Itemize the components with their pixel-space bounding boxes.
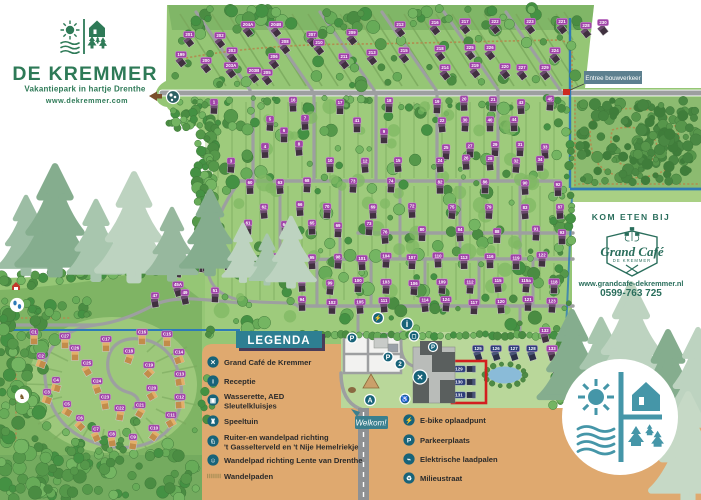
- svg-text:45: 45: [548, 96, 553, 101]
- svg-text:91: 91: [534, 226, 539, 231]
- svg-text:P: P: [431, 345, 435, 351]
- svg-text:214: 214: [441, 65, 449, 70]
- svg-text:25: 25: [444, 145, 449, 150]
- svg-text:⚡: ⚡: [405, 416, 413, 424]
- svg-text:C23: C23: [101, 395, 110, 400]
- svg-text:47: 47: [153, 293, 158, 298]
- svg-text:0599-763 725: 0599-763 725: [600, 288, 662, 299]
- svg-text:121: 121: [524, 297, 532, 302]
- svg-text:69: 69: [371, 205, 376, 210]
- svg-text:Receptie: Receptie: [224, 377, 256, 386]
- svg-text:217: 217: [461, 19, 469, 24]
- svg-text:A: A: [367, 398, 372, 405]
- svg-text:16: 16: [291, 98, 296, 103]
- svg-text:P: P: [350, 336, 355, 343]
- svg-text:C9: C9: [130, 435, 136, 440]
- svg-text:104: 104: [382, 254, 390, 259]
- svg-text:C13: C13: [176, 372, 185, 377]
- svg-text:73: 73: [351, 179, 356, 184]
- svg-text:☺: ☺: [210, 457, 217, 464]
- svg-text:74: 74: [389, 178, 394, 183]
- svg-text:63: 63: [278, 180, 283, 185]
- svg-text:95: 95: [310, 255, 315, 260]
- svg-text:203B: 203B: [249, 68, 260, 73]
- svg-text:C15: C15: [163, 332, 172, 337]
- svg-text:Speeltuin: Speeltuin: [224, 417, 259, 426]
- svg-text:82: 82: [438, 180, 443, 185]
- svg-text:C10: C10: [150, 426, 159, 431]
- svg-text:75: 75: [450, 205, 455, 210]
- svg-text:124: 124: [442, 297, 450, 302]
- svg-text:C24: C24: [93, 379, 102, 384]
- svg-text:34: 34: [538, 157, 543, 162]
- svg-text:28: 28: [488, 156, 493, 161]
- svg-text:65: 65: [310, 221, 315, 226]
- svg-text:61: 61: [246, 220, 251, 225]
- svg-text:www.dekremmer.com: www.dekremmer.com: [45, 96, 128, 105]
- svg-text:30: 30: [463, 117, 468, 122]
- svg-text:17: 17: [338, 100, 343, 105]
- svg-text:C22: C22: [116, 406, 125, 411]
- svg-text:Vakantiepark in hartje Drenthe: Vakantiepark in hartje Drenthe: [24, 85, 146, 94]
- svg-text:113: 113: [460, 255, 468, 260]
- svg-text:66: 66: [298, 202, 303, 207]
- svg-text:102: 102: [328, 300, 336, 305]
- svg-text:31: 31: [518, 142, 523, 147]
- svg-text:Milieustraat: Milieustraat: [420, 474, 463, 483]
- svg-text:80: 80: [420, 227, 425, 232]
- svg-text:www.grandcafe-dekremmer.nl: www.grandcafe-dekremmer.nl: [578, 279, 684, 288]
- svg-text:103: 103: [382, 280, 390, 285]
- svg-text:C3: C3: [44, 390, 50, 395]
- svg-text:131: 131: [455, 393, 463, 398]
- svg-text:112: 112: [466, 280, 474, 285]
- svg-text:205: 205: [263, 70, 271, 75]
- svg-text:116: 116: [486, 254, 494, 259]
- svg-text:C19: C19: [145, 363, 154, 368]
- svg-text:225: 225: [466, 45, 474, 50]
- svg-text:88: 88: [495, 229, 500, 234]
- svg-text:44: 44: [512, 117, 517, 122]
- svg-text:45A: 45A: [174, 282, 183, 287]
- svg-text:204B: 204B: [271, 22, 282, 27]
- svg-text:⌁: ⌁: [407, 456, 411, 463]
- svg-text:C7: C7: [93, 427, 99, 432]
- svg-text:◻: ◻: [412, 334, 417, 340]
- svg-text:i: i: [212, 378, 214, 385]
- svg-text:119: 119: [512, 255, 520, 260]
- svg-text:19: 19: [435, 99, 440, 104]
- svg-text:21: 21: [491, 97, 496, 102]
- svg-text:C17: C17: [102, 337, 111, 342]
- svg-text:24: 24: [438, 158, 443, 163]
- svg-text:209: 209: [348, 30, 356, 35]
- svg-text:LEGENDA: LEGENDA: [247, 335, 310, 347]
- svg-text:32: 32: [514, 159, 519, 164]
- svg-text:12: 12: [363, 159, 368, 164]
- svg-text:122: 122: [538, 253, 546, 258]
- svg-text:22: 22: [440, 118, 445, 123]
- svg-text:207: 207: [308, 32, 316, 37]
- svg-text:18: 18: [387, 98, 392, 103]
- svg-text:✕: ✕: [210, 359, 216, 366]
- svg-text:51: 51: [213, 288, 218, 293]
- svg-text:15: 15: [396, 158, 401, 163]
- svg-text:90: 90: [523, 181, 528, 186]
- svg-text:C6: C6: [77, 416, 83, 421]
- svg-text:98: 98: [336, 254, 341, 259]
- svg-text:125: 125: [474, 346, 482, 351]
- svg-text:10: 10: [328, 158, 333, 163]
- svg-text:213: 213: [368, 50, 376, 55]
- svg-text:222: 222: [491, 19, 499, 24]
- svg-text:220: 220: [501, 64, 509, 69]
- svg-text:109: 109: [438, 280, 446, 285]
- svg-text:C12: C12: [176, 395, 185, 400]
- svg-text:111: 111: [381, 298, 388, 303]
- svg-text:229: 229: [541, 65, 549, 70]
- svg-text:C4: C4: [53, 378, 59, 383]
- svg-text:226: 226: [486, 45, 494, 50]
- svg-text:221: 221: [558, 19, 566, 24]
- svg-text:200: 200: [202, 58, 210, 63]
- svg-text:29: 29: [493, 142, 498, 147]
- svg-text:132: 132: [541, 328, 549, 333]
- svg-text:123: 123: [548, 299, 556, 304]
- svg-text:Grand Café de Kremmer: Grand Café de Kremmer: [224, 358, 311, 367]
- svg-text:♜: ♜: [210, 417, 216, 425]
- svg-text:P: P: [386, 355, 391, 362]
- svg-text:Wasserette, AED: Wasserette, AED: [224, 392, 285, 401]
- svg-text:223: 223: [526, 19, 534, 24]
- svg-text:49: 49: [183, 290, 188, 295]
- svg-text:206: 206: [270, 54, 278, 59]
- svg-text:Entree bouwverkeer: Entree bouwverkeer: [585, 75, 640, 82]
- svg-text:♞: ♞: [19, 393, 25, 401]
- svg-text:C11: C11: [167, 413, 175, 418]
- svg-text:Wandelpad richting Lente van D: Wandelpad richting Lente van Drenthe: [224, 456, 363, 465]
- svg-text:⚡: ⚡: [374, 314, 381, 322]
- svg-text:203: 203: [228, 48, 236, 53]
- svg-text:127: 127: [510, 346, 518, 351]
- svg-text:70: 70: [325, 204, 330, 209]
- svg-text:Welkom!: Welkom!: [356, 419, 388, 428]
- svg-text:C21: C21: [136, 403, 145, 408]
- svg-text:DE KREMMER: DE KREMMER: [12, 63, 157, 85]
- svg-text:219: 219: [471, 63, 479, 68]
- svg-text:C2: C2: [38, 354, 44, 359]
- svg-text:72: 72: [410, 204, 415, 209]
- svg-text:93: 93: [560, 230, 565, 235]
- svg-text:118: 118: [550, 279, 558, 284]
- svg-text:Ruiter-en wandelpad richting: Ruiter-en wandelpad richting: [224, 433, 329, 442]
- svg-text:101: 101: [358, 256, 366, 261]
- svg-text:129: 129: [455, 367, 463, 372]
- svg-text:C14: C14: [175, 350, 184, 355]
- svg-text:Grand Café: Grand Café: [600, 244, 664, 259]
- svg-text:110: 110: [434, 253, 442, 258]
- svg-text:C26: C26: [71, 346, 80, 351]
- svg-text:C5: C5: [64, 402, 70, 407]
- svg-text:128: 128: [528, 346, 536, 351]
- svg-text:'t Gasselterveld en 't Nije He: 't Gasselterveld en 't Nije Hemelriekje: [224, 442, 358, 451]
- svg-text:115: 115: [494, 278, 502, 283]
- svg-text:227: 227: [518, 65, 526, 70]
- svg-text:DE KREMMER: DE KREMMER: [613, 258, 651, 263]
- svg-text:202: 202: [216, 33, 224, 38]
- svg-text:C8: C8: [109, 432, 115, 437]
- svg-text:211: 211: [340, 54, 348, 59]
- svg-text:218: 218: [436, 46, 444, 51]
- svg-text:27: 27: [468, 143, 473, 148]
- svg-text:107: 107: [408, 255, 416, 260]
- svg-text:i: i: [406, 319, 409, 329]
- svg-text:204A: 204A: [243, 22, 254, 27]
- svg-text:199: 199: [177, 52, 185, 57]
- svg-text:♻: ♻: [406, 474, 412, 482]
- svg-text:210: 210: [315, 40, 323, 45]
- svg-text:126: 126: [492, 346, 500, 351]
- svg-text:115a: 115a: [521, 278, 531, 283]
- svg-text:33: 33: [543, 145, 548, 150]
- svg-text:▣: ▣: [210, 397, 217, 404]
- svg-text:Wandelpaden: Wandelpaden: [224, 472, 273, 481]
- svg-text:C1: C1: [31, 330, 37, 335]
- svg-text:Sleutelkluisjes: Sleutelkluisjes: [224, 401, 277, 410]
- svg-text:60: 60: [248, 180, 253, 185]
- svg-text:43: 43: [519, 100, 524, 105]
- svg-text:✕: ✕: [417, 373, 424, 382]
- svg-text:212: 212: [396, 22, 404, 27]
- svg-text:208: 208: [281, 39, 289, 44]
- svg-text:94: 94: [300, 297, 305, 302]
- svg-text:230: 230: [599, 20, 607, 25]
- svg-text:41: 41: [355, 118, 360, 123]
- svg-text:C20: C20: [148, 386, 157, 391]
- svg-text:C16: C16: [138, 330, 147, 335]
- svg-text:♿: ♿: [401, 395, 409, 403]
- svg-text:117: 117: [470, 300, 478, 305]
- svg-text:♘: ♘: [210, 437, 216, 445]
- svg-text:106: 106: [410, 281, 418, 286]
- svg-text:Parkeerplaats: Parkeerplaats: [420, 436, 470, 445]
- svg-text:228: 228: [582, 23, 590, 28]
- svg-text:100: 100: [354, 278, 362, 283]
- svg-text:69: 69: [336, 223, 341, 228]
- svg-text:83: 83: [523, 205, 528, 210]
- svg-text:KOM ETEN BIJ: KOM ETEN BIJ: [592, 212, 670, 222]
- svg-text:73: 73: [367, 221, 372, 226]
- svg-text:99: 99: [328, 281, 333, 286]
- svg-text:62: 62: [262, 205, 267, 210]
- svg-text:C25: C25: [83, 361, 92, 366]
- svg-text:C27: C27: [61, 334, 70, 339]
- svg-text:68: 68: [305, 178, 310, 183]
- svg-text:224: 224: [551, 48, 559, 53]
- svg-text:201: 201: [185, 32, 193, 37]
- svg-text:203A: 203A: [226, 63, 237, 68]
- svg-text:84: 84: [458, 227, 463, 232]
- svg-text:40: 40: [488, 117, 493, 122]
- svg-text:130: 130: [455, 380, 463, 385]
- svg-text:216: 216: [431, 20, 439, 25]
- svg-text:86: 86: [483, 179, 488, 184]
- svg-text:105: 105: [356, 300, 364, 305]
- svg-text:120: 120: [497, 299, 505, 304]
- svg-text:Elektrische laadpalen: Elektrische laadpalen: [420, 455, 498, 464]
- svg-text:C18: C18: [125, 349, 134, 354]
- svg-text:87: 87: [558, 205, 563, 210]
- svg-text:133: 133: [548, 346, 556, 351]
- svg-text:215: 215: [400, 48, 408, 53]
- svg-text:E-bike oplaadpunt: E-bike oplaadpunt: [420, 416, 486, 425]
- svg-text:26: 26: [464, 156, 469, 161]
- svg-text:76: 76: [383, 230, 388, 235]
- svg-text:P: P: [407, 437, 412, 444]
- svg-text:114: 114: [421, 298, 429, 303]
- svg-text:92: 92: [556, 182, 561, 187]
- svg-text:79: 79: [487, 205, 492, 210]
- svg-text:20: 20: [462, 97, 467, 102]
